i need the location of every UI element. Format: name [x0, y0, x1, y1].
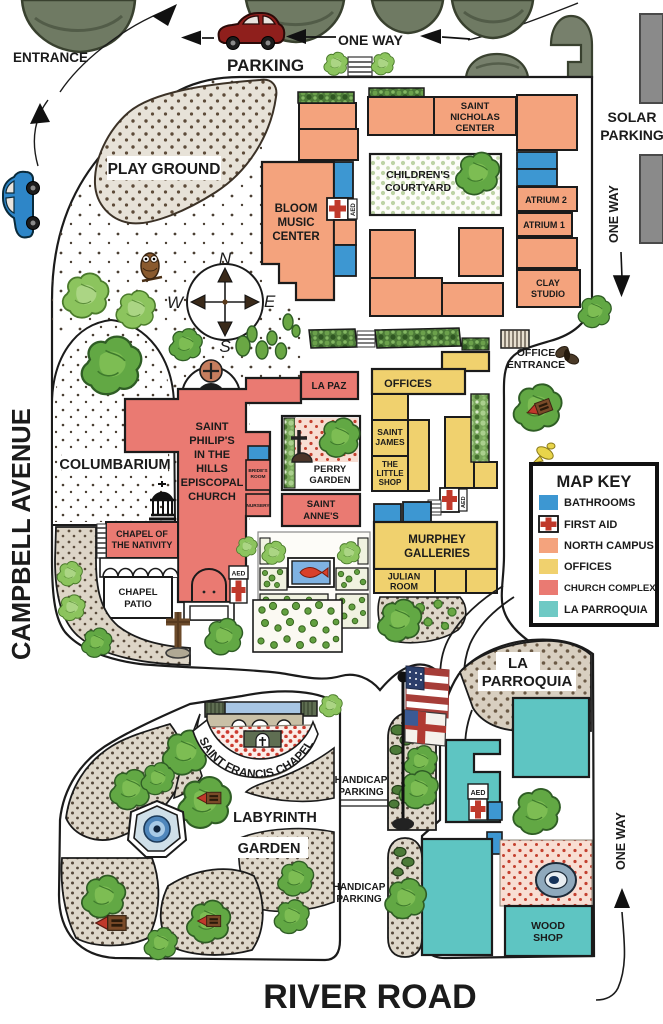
- svg-text:W: W: [167, 293, 185, 312]
- svg-text:OFFICES: OFFICES: [564, 561, 612, 573]
- svg-text:CLAY: CLAY: [536, 278, 560, 288]
- svg-text:CENTER: CENTER: [455, 123, 494, 134]
- svg-text:LA: LA: [508, 655, 528, 672]
- svg-text:BLOOM: BLOOM: [275, 203, 318, 215]
- svg-text:PERRY: PERRY: [314, 464, 347, 475]
- svg-text:CAMPBELL AVENUE: CAMPBELL AVENUE: [8, 408, 36, 660]
- svg-text:ROOM: ROOM: [390, 582, 418, 592]
- svg-text:PARKING: PARKING: [338, 787, 384, 798]
- svg-text:PHILIP'S: PHILIP'S: [189, 435, 234, 447]
- svg-text:PARKING: PARKING: [227, 56, 304, 75]
- svg-text:LABYRINTH: LABYRINTH: [233, 810, 317, 826]
- svg-text:GARDEN: GARDEN: [238, 841, 301, 857]
- svg-text:GARDEN: GARDEN: [309, 475, 350, 486]
- svg-text:OFFICE: OFFICE: [517, 347, 556, 359]
- svg-text:HILLS: HILLS: [196, 463, 228, 475]
- svg-text:N: N: [219, 249, 232, 268]
- svg-text:ENTRANCE: ENTRANCE: [507, 359, 565, 371]
- svg-text:BATHROOMS: BATHROOMS: [564, 497, 635, 509]
- svg-text:CHAPEL OF: CHAPEL OF: [116, 529, 168, 539]
- svg-text:CHURCH: CHURCH: [188, 491, 236, 503]
- svg-text:HANDICAP: HANDICAP: [335, 775, 388, 786]
- svg-text:LA PARROQUIA: LA PARROQUIA: [564, 604, 648, 616]
- svg-text:PLAY GROUND: PLAY GROUND: [108, 161, 221, 178]
- svg-text:CHILDREN'S: CHILDREN'S: [386, 169, 450, 181]
- svg-text:GALLERIES: GALLERIES: [404, 548, 470, 560]
- svg-text:ROOM: ROOM: [251, 474, 266, 480]
- svg-text:COLUMBARIUM: COLUMBARIUM: [59, 457, 170, 473]
- svg-text:AED: AED: [471, 790, 486, 797]
- svg-text:E: E: [264, 292, 276, 311]
- svg-text:ENTRANCE: ENTRANCE: [13, 50, 88, 65]
- svg-text:CENTER: CENTER: [272, 231, 320, 243]
- svg-text:WOOD: WOOD: [531, 920, 565, 932]
- svg-text:SHOP: SHOP: [379, 478, 402, 487]
- svg-text:SAINT: SAINT: [461, 101, 490, 112]
- svg-text:NORTH CAMPUS: NORTH CAMPUS: [564, 540, 654, 552]
- svg-text:SAINT: SAINT: [196, 421, 229, 433]
- svg-text:ONE WAY: ONE WAY: [614, 811, 628, 870]
- svg-text:RIVER ROAD: RIVER ROAD: [263, 978, 476, 1016]
- svg-text:MAP KEY: MAP KEY: [557, 473, 632, 491]
- svg-text:PATIO: PATIO: [124, 599, 152, 610]
- svg-text:OFFICES: OFFICES: [384, 378, 432, 390]
- svg-text:PARKING: PARKING: [600, 127, 663, 143]
- svg-text:LITTLE: LITTLE: [376, 469, 404, 478]
- svg-text:AED: AED: [461, 496, 467, 508]
- svg-text:COURTYARD: COURTYARD: [385, 182, 452, 194]
- svg-text:BRIDE'S: BRIDE'S: [248, 468, 268, 474]
- svg-text:NICHOLAS: NICHOLAS: [450, 112, 500, 123]
- svg-text:ONE WAY: ONE WAY: [338, 32, 403, 48]
- svg-text:MURPHEY: MURPHEY: [408, 534, 466, 546]
- svg-text:ATRIUM 2: ATRIUM 2: [525, 195, 567, 205]
- svg-text:NURSERY: NURSERY: [246, 503, 270, 509]
- svg-text:STUDIO: STUDIO: [531, 289, 565, 299]
- svg-text:CHAPEL: CHAPEL: [118, 587, 157, 598]
- svg-text:S: S: [219, 337, 231, 356]
- svg-text:FIRST AID: FIRST AID: [564, 519, 617, 531]
- svg-text:SOLAR: SOLAR: [608, 109, 657, 125]
- svg-text:SAINT: SAINT: [307, 499, 336, 510]
- svg-text:SAINT: SAINT: [377, 427, 403, 437]
- svg-text:CHURCH COMPLEX: CHURCH COMPLEX: [564, 583, 656, 594]
- svg-text:PARROQUIA: PARROQUIA: [482, 673, 573, 690]
- svg-text:LA PAZ: LA PAZ: [312, 381, 347, 392]
- svg-text:MUSIC: MUSIC: [277, 217, 314, 229]
- svg-text:THE NATIVITY: THE NATIVITY: [112, 540, 173, 550]
- svg-text:HANDICAP: HANDICAP: [333, 882, 386, 893]
- svg-text:IN THE: IN THE: [194, 449, 230, 461]
- svg-text:ANNE'S: ANNE'S: [303, 511, 339, 522]
- svg-text:ATRIUM 1: ATRIUM 1: [523, 220, 565, 230]
- svg-text:JULIAN: JULIAN: [388, 572, 421, 582]
- svg-text:AED: AED: [232, 571, 246, 578]
- svg-text:ONE WAY: ONE WAY: [607, 184, 621, 243]
- svg-text:SHOP: SHOP: [533, 932, 563, 944]
- svg-text:JAMES: JAMES: [375, 437, 405, 447]
- svg-text:THE: THE: [382, 460, 399, 469]
- svg-text:EPISCOPAL: EPISCOPAL: [181, 477, 244, 489]
- svg-text:PARKING: PARKING: [336, 894, 382, 905]
- svg-text:AED: AED: [351, 203, 357, 216]
